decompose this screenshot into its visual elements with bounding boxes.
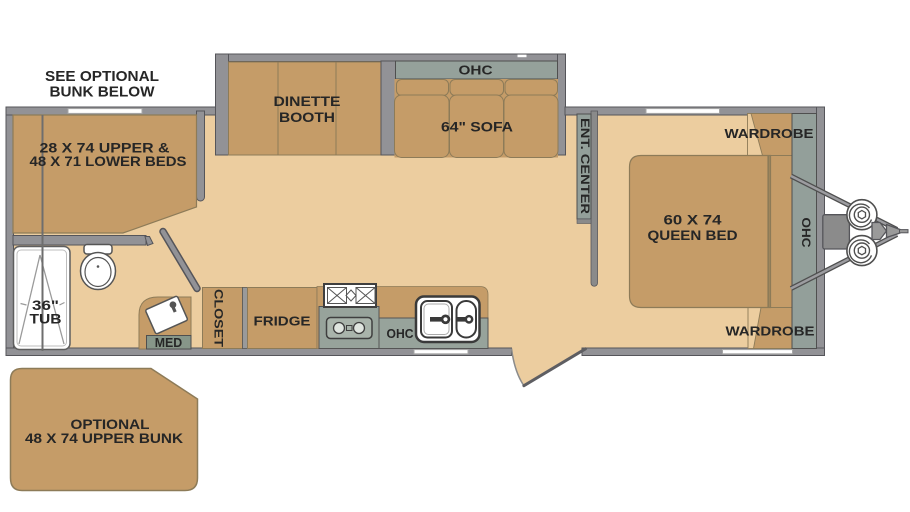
- svg-text:64" SOFA: 64" SOFA: [441, 119, 513, 135]
- svg-text:MED: MED: [155, 336, 183, 350]
- svg-text:QUEEN BED: QUEEN BED: [648, 227, 738, 243]
- svg-text:OHC: OHC: [459, 63, 494, 78]
- svg-text:WARDROBE: WARDROBE: [725, 126, 814, 141]
- svg-text:BUNK BELOW: BUNK BELOW: [50, 84, 156, 101]
- svg-text:DINETTE: DINETTE: [274, 93, 341, 109]
- svg-text:ENT. CENTER: ENT. CENTER: [578, 118, 590, 215]
- svg-text:TUB: TUB: [30, 311, 62, 326]
- svg-text:OHC: OHC: [799, 218, 813, 248]
- svg-text:48 X 74 UPPER BUNK: 48 X 74 UPPER BUNK: [25, 430, 183, 446]
- svg-text:FRIDGE: FRIDGE: [254, 313, 311, 328]
- svg-text:OHC: OHC: [387, 327, 414, 341]
- svg-text:SEE OPTIONAL: SEE OPTIONAL: [45, 68, 159, 85]
- svg-text:BOOTH: BOOTH: [279, 109, 335, 125]
- svg-text:48 X 71 LOWER BEDS: 48 X 71 LOWER BEDS: [30, 154, 187, 169]
- svg-text:WARDROBE: WARDROBE: [726, 324, 815, 339]
- svg-text:CLOSET: CLOSET: [212, 289, 224, 347]
- svg-text:60 X 74: 60 X 74: [664, 212, 722, 228]
